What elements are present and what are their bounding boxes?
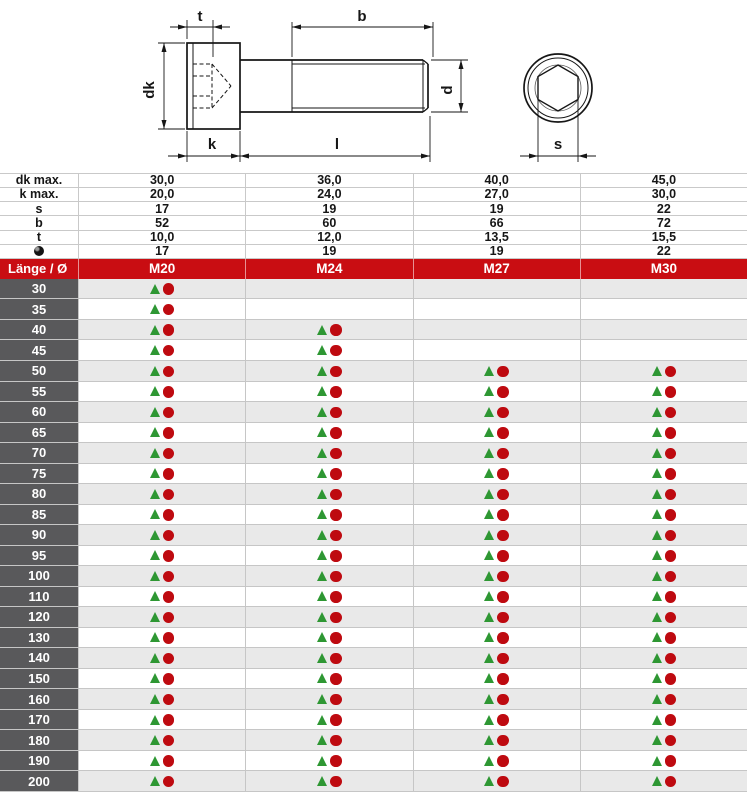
availability-triangle-icon xyxy=(484,489,494,499)
availability-cell xyxy=(580,648,747,668)
availability-dot-icon xyxy=(497,591,509,603)
spec-row: s17191922 xyxy=(0,202,747,216)
availability-cell xyxy=(78,382,245,402)
availability-dot-icon xyxy=(330,386,342,398)
availability-triangle-icon xyxy=(317,386,327,396)
availability-triangle-icon xyxy=(150,448,160,458)
availability-dot-icon xyxy=(665,550,677,562)
availability-dot-icon xyxy=(163,632,175,644)
availability-dot-icon xyxy=(330,468,342,480)
availability-triangle-icon xyxy=(652,427,662,437)
availability-dot-icon xyxy=(330,345,342,357)
length-cell: 120 xyxy=(0,607,78,627)
availability-dot-icon xyxy=(665,755,677,767)
availability-triangle-icon xyxy=(652,530,662,540)
availability-dot-icon xyxy=(330,653,342,665)
availability-cell xyxy=(580,669,747,689)
availability-dot-icon xyxy=(163,304,175,316)
availability-cell xyxy=(413,340,580,360)
availability-markers xyxy=(317,323,342,336)
availability-cell xyxy=(413,648,580,668)
availability-dot-icon xyxy=(330,694,342,706)
length-cell: 35 xyxy=(0,299,78,319)
availability-triangle-icon xyxy=(150,366,160,376)
table-row: 170 xyxy=(0,710,747,731)
column-header-m24: M24 xyxy=(245,259,412,279)
spec-value: 30,0 xyxy=(580,188,747,201)
table-row: 110 xyxy=(0,587,747,608)
availability-cell xyxy=(413,484,580,504)
availability-markers xyxy=(317,385,342,398)
availability-cell xyxy=(580,607,747,627)
technical-drawing: t b dk k l d s xyxy=(0,0,747,173)
availability-markers xyxy=(652,426,677,439)
availability-cell xyxy=(78,771,245,791)
spec-value: 22 xyxy=(580,202,747,215)
availability-dot-icon xyxy=(665,509,677,521)
availability-markers xyxy=(150,406,175,419)
availability-cell xyxy=(78,423,245,443)
availability-triangle-icon xyxy=(484,776,494,786)
availability-cell xyxy=(413,628,580,648)
availability-triangle-icon xyxy=(484,673,494,683)
availability-triangle-icon xyxy=(652,694,662,704)
length-cell: 40 xyxy=(0,320,78,340)
availability-cell xyxy=(78,730,245,750)
availability-markers xyxy=(150,590,175,603)
availability-triangle-icon xyxy=(150,325,160,335)
availability-triangle-icon xyxy=(150,304,160,314)
availability-markers xyxy=(317,529,342,542)
availability-markers xyxy=(484,365,509,378)
availability-triangle-icon xyxy=(150,571,160,581)
availability-dot-icon xyxy=(163,653,175,665)
availability-markers xyxy=(150,447,175,460)
availability-triangle-icon xyxy=(484,550,494,560)
availability-markers xyxy=(652,713,677,726)
spec-value: 60 xyxy=(245,216,412,229)
availability-triangle-icon xyxy=(484,448,494,458)
availability-markers xyxy=(317,570,342,583)
availability-triangle-icon xyxy=(484,530,494,540)
availability-markers xyxy=(150,508,175,521)
length-cell: 130 xyxy=(0,628,78,648)
table-row: 90 xyxy=(0,525,747,546)
availability-cell xyxy=(413,382,580,402)
availability-markers xyxy=(150,611,175,624)
availability-dot-icon xyxy=(665,407,677,419)
availability-table: 3035404550556065707580859095100110120130… xyxy=(0,279,747,792)
availability-triangle-icon xyxy=(652,673,662,683)
availability-dot-icon xyxy=(497,448,509,460)
spec-row-label xyxy=(0,245,78,258)
availability-cell xyxy=(413,320,580,340)
availability-triangle-icon xyxy=(317,571,327,581)
availability-dot-icon xyxy=(497,530,509,542)
availability-dot-icon xyxy=(665,632,677,644)
availability-cell xyxy=(580,443,747,463)
availability-dot-icon xyxy=(163,550,175,562)
table-row: 55 xyxy=(0,382,747,403)
availability-markers xyxy=(484,734,509,747)
length-cell: 50 xyxy=(0,361,78,381)
availability-triangle-icon xyxy=(317,530,327,540)
availability-dot-icon xyxy=(330,612,342,624)
spec-value: 45,0 xyxy=(580,174,747,187)
length-cell: 160 xyxy=(0,689,78,709)
availability-triangle-icon xyxy=(150,530,160,540)
length-cell: 180 xyxy=(0,730,78,750)
availability-dot-icon xyxy=(163,509,175,521)
spec-table: dk max.30,036,040,045,0k max.20,024,027,… xyxy=(0,173,747,259)
availability-triangle-icon xyxy=(150,407,160,417)
spec-value: 30,0 xyxy=(78,174,245,187)
availability-dot-icon xyxy=(497,468,509,480)
availability-markers xyxy=(150,303,175,316)
spec-value: 20,0 xyxy=(78,188,245,201)
availability-dot-icon xyxy=(665,468,677,480)
availability-triangle-icon xyxy=(484,756,494,766)
availability-cell xyxy=(413,299,580,319)
spec-row: dk max.30,036,040,045,0 xyxy=(0,174,747,188)
availability-cell xyxy=(78,587,245,607)
availability-triangle-icon xyxy=(652,448,662,458)
availability-triangle-icon xyxy=(484,591,494,601)
availability-markers xyxy=(317,488,342,501)
spec-row-label: k max. xyxy=(0,188,78,201)
length-cell: 100 xyxy=(0,566,78,586)
length-cell: 150 xyxy=(0,669,78,689)
length-diameter-header: Länge / Ø xyxy=(0,259,78,279)
availability-dot-icon xyxy=(497,632,509,644)
availability-markers xyxy=(652,672,677,685)
spec-row: 17191922 xyxy=(0,245,747,259)
availability-triangle-icon xyxy=(652,735,662,745)
availability-triangle-icon xyxy=(150,345,160,355)
availability-triangle-icon xyxy=(484,366,494,376)
availability-cell xyxy=(78,546,245,566)
availability-triangle-icon xyxy=(150,673,160,683)
availability-dot-icon xyxy=(163,283,175,295)
dim-label-d: d xyxy=(439,85,456,94)
availability-triangle-icon xyxy=(652,489,662,499)
dim-label-t: t xyxy=(198,8,203,25)
dim-label-k: k xyxy=(208,136,217,153)
availability-cell xyxy=(580,628,747,648)
availability-triangle-icon xyxy=(317,673,327,683)
availability-cell xyxy=(580,382,747,402)
availability-triangle-icon xyxy=(652,715,662,725)
availability-markers xyxy=(652,611,677,624)
table-row: 150 xyxy=(0,669,747,690)
availability-cell xyxy=(413,361,580,381)
availability-markers xyxy=(484,385,509,398)
availability-dot-icon xyxy=(330,714,342,726)
availability-triangle-icon xyxy=(317,427,327,437)
availability-dot-icon xyxy=(665,489,677,501)
availability-dot-icon xyxy=(330,591,342,603)
availability-triangle-icon xyxy=(317,653,327,663)
availability-triangle-icon xyxy=(150,591,160,601)
availability-markers xyxy=(150,385,175,398)
availability-triangle-icon xyxy=(317,550,327,560)
availability-markers xyxy=(150,713,175,726)
availability-dot-icon xyxy=(665,427,677,439)
dim-label-s: s xyxy=(554,136,562,153)
availability-markers xyxy=(484,447,509,460)
availability-dot-icon xyxy=(665,673,677,685)
availability-cell xyxy=(245,505,412,525)
availability-triangle-icon xyxy=(150,427,160,437)
availability-cell xyxy=(78,464,245,484)
availability-markers xyxy=(652,529,677,542)
spec-value: 19 xyxy=(245,202,412,215)
availability-cell xyxy=(245,361,412,381)
availability-markers xyxy=(484,713,509,726)
availability-triangle-icon xyxy=(150,653,160,663)
availability-markers xyxy=(317,652,342,665)
availability-markers xyxy=(652,754,677,767)
availability-dot-icon xyxy=(330,489,342,501)
availability-markers xyxy=(652,693,677,706)
availability-markers xyxy=(484,549,509,562)
availability-cell xyxy=(580,505,747,525)
availability-dot-icon xyxy=(330,509,342,521)
availability-cell xyxy=(413,423,580,443)
availability-cell xyxy=(78,320,245,340)
availability-markers xyxy=(317,754,342,767)
availability-cell xyxy=(245,443,412,463)
spec-value: 27,0 xyxy=(413,188,580,201)
availability-triangle-icon xyxy=(484,735,494,745)
availability-markers xyxy=(317,631,342,644)
availability-markers xyxy=(484,467,509,480)
table-row: 65 xyxy=(0,423,747,444)
availability-triangle-icon xyxy=(150,509,160,519)
availability-markers xyxy=(150,282,175,295)
table-row: 45 xyxy=(0,340,747,361)
availability-cell xyxy=(78,710,245,730)
availability-dot-icon xyxy=(665,591,677,603)
availability-triangle-icon xyxy=(484,694,494,704)
availability-markers xyxy=(484,631,509,644)
spec-row: b52606672 xyxy=(0,216,747,230)
availability-markers xyxy=(317,365,342,378)
availability-dot-icon xyxy=(330,407,342,419)
availability-markers xyxy=(317,590,342,603)
availability-dot-icon xyxy=(665,612,677,624)
availability-triangle-icon xyxy=(652,407,662,417)
availability-dot-icon xyxy=(665,386,677,398)
availability-markers xyxy=(652,508,677,521)
availability-cell xyxy=(78,443,245,463)
availability-dot-icon xyxy=(497,366,509,378)
availability-cell xyxy=(245,423,412,443)
spec-value: 17 xyxy=(78,245,245,258)
availability-cell xyxy=(580,320,747,340)
availability-markers xyxy=(652,447,677,460)
availability-cell xyxy=(580,484,747,504)
availability-triangle-icon xyxy=(317,407,327,417)
availability-triangle-icon xyxy=(484,612,494,622)
availability-markers xyxy=(652,406,677,419)
availability-dot-icon xyxy=(163,694,175,706)
availability-markers xyxy=(484,508,509,521)
availability-dot-icon xyxy=(163,345,175,357)
availability-cell xyxy=(413,525,580,545)
length-cell: 170 xyxy=(0,710,78,730)
availability-markers xyxy=(652,467,677,480)
availability-dot-icon xyxy=(497,776,509,788)
dim-label-b: b xyxy=(357,8,366,25)
availability-dot-icon xyxy=(497,427,509,439)
availability-cell xyxy=(413,546,580,566)
availability-triangle-icon xyxy=(652,591,662,601)
table-row: 50 xyxy=(0,361,747,382)
spec-value: 36,0 xyxy=(245,174,412,187)
availability-markers xyxy=(150,734,175,747)
availability-markers xyxy=(652,652,677,665)
screw-drawing-svg: t b dk k l d s xyxy=(0,0,747,173)
hex-key-size-icon xyxy=(34,246,44,256)
availability-dot-icon xyxy=(330,324,342,336)
spec-row-label: dk max. xyxy=(0,174,78,187)
availability-markers xyxy=(484,775,509,788)
availability-markers xyxy=(317,734,342,747)
availability-triangle-icon xyxy=(484,427,494,437)
availability-cell xyxy=(580,689,747,709)
availability-cell xyxy=(245,689,412,709)
availability-dot-icon xyxy=(163,468,175,480)
availability-triangle-icon xyxy=(150,386,160,396)
availability-markers xyxy=(484,672,509,685)
availability-cell xyxy=(413,771,580,791)
availability-triangle-icon xyxy=(652,509,662,519)
availability-triangle-icon xyxy=(484,715,494,725)
availability-dot-icon xyxy=(163,673,175,685)
length-cell: 200 xyxy=(0,771,78,791)
length-cell: 90 xyxy=(0,525,78,545)
availability-triangle-icon xyxy=(484,571,494,581)
availability-markers xyxy=(150,570,175,583)
availability-dot-icon xyxy=(330,755,342,767)
availability-triangle-icon xyxy=(150,489,160,499)
table-row: 60 xyxy=(0,402,747,423)
availability-markers xyxy=(484,590,509,603)
availability-triangle-icon xyxy=(317,591,327,601)
length-cell: 60 xyxy=(0,402,78,422)
availability-cell xyxy=(413,279,580,299)
availability-markers xyxy=(150,754,175,767)
availability-dot-icon xyxy=(163,530,175,542)
availability-dot-icon xyxy=(163,612,175,624)
availability-markers xyxy=(317,344,342,357)
availability-cell xyxy=(580,587,747,607)
spec-value: 19 xyxy=(413,202,580,215)
size-header-row: Länge / Ø M20 M24 M27 M30 xyxy=(0,259,747,279)
availability-dot-icon xyxy=(163,735,175,747)
length-cell: 95 xyxy=(0,546,78,566)
availability-cell xyxy=(78,607,245,627)
availability-cell xyxy=(245,320,412,340)
availability-dot-icon xyxy=(497,386,509,398)
table-row: 35 xyxy=(0,299,747,320)
table-row: 140 xyxy=(0,648,747,669)
table-row: 180 xyxy=(0,730,747,751)
availability-triangle-icon xyxy=(652,468,662,478)
availability-dot-icon xyxy=(163,591,175,603)
availability-cell xyxy=(245,279,412,299)
availability-dot-icon xyxy=(665,776,677,788)
availability-markers xyxy=(317,775,342,788)
availability-cell xyxy=(78,279,245,299)
availability-cell xyxy=(245,525,412,545)
availability-cell xyxy=(78,648,245,668)
availability-dot-icon xyxy=(163,489,175,501)
availability-triangle-icon xyxy=(652,550,662,560)
availability-dot-icon xyxy=(330,735,342,747)
availability-cell xyxy=(580,361,747,381)
availability-triangle-icon xyxy=(150,550,160,560)
availability-cell xyxy=(245,607,412,627)
availability-triangle-icon xyxy=(150,715,160,725)
table-row: 70 xyxy=(0,443,747,464)
availability-cell xyxy=(580,730,747,750)
availability-cell xyxy=(580,299,747,319)
availability-triangle-icon xyxy=(317,612,327,622)
availability-cell xyxy=(413,587,580,607)
availability-cell xyxy=(245,730,412,750)
availability-markers xyxy=(317,447,342,460)
availability-markers xyxy=(317,406,342,419)
availability-triangle-icon xyxy=(484,386,494,396)
availability-triangle-icon xyxy=(150,735,160,745)
availability-cell xyxy=(580,402,747,422)
availability-cell xyxy=(78,402,245,422)
availability-dot-icon xyxy=(497,755,509,767)
availability-cell xyxy=(413,402,580,422)
availability-markers xyxy=(484,611,509,624)
availability-markers xyxy=(484,652,509,665)
table-row: 120 xyxy=(0,607,747,628)
availability-markers xyxy=(484,426,509,439)
availability-cell xyxy=(78,689,245,709)
availability-cell xyxy=(413,607,580,627)
length-cell: 30 xyxy=(0,279,78,299)
availability-triangle-icon xyxy=(150,612,160,622)
table-row: 85 xyxy=(0,505,747,526)
availability-dot-icon xyxy=(163,571,175,583)
availability-cell xyxy=(78,566,245,586)
availability-markers xyxy=(150,631,175,644)
availability-markers xyxy=(317,426,342,439)
length-cell: 70 xyxy=(0,443,78,463)
availability-markers xyxy=(317,549,342,562)
availability-cell xyxy=(580,710,747,730)
availability-dot-icon xyxy=(665,366,677,378)
spec-row: t10,012,013,515,5 xyxy=(0,231,747,245)
availability-triangle-icon xyxy=(150,776,160,786)
availability-dot-icon xyxy=(163,755,175,767)
spec-row-label: s xyxy=(0,202,78,215)
availability-markers xyxy=(484,488,509,501)
availability-cell xyxy=(245,299,412,319)
availability-markers xyxy=(484,570,509,583)
spec-value: 22 xyxy=(580,245,747,258)
availability-markers xyxy=(652,570,677,583)
availability-markers xyxy=(652,385,677,398)
availability-markers xyxy=(150,775,175,788)
